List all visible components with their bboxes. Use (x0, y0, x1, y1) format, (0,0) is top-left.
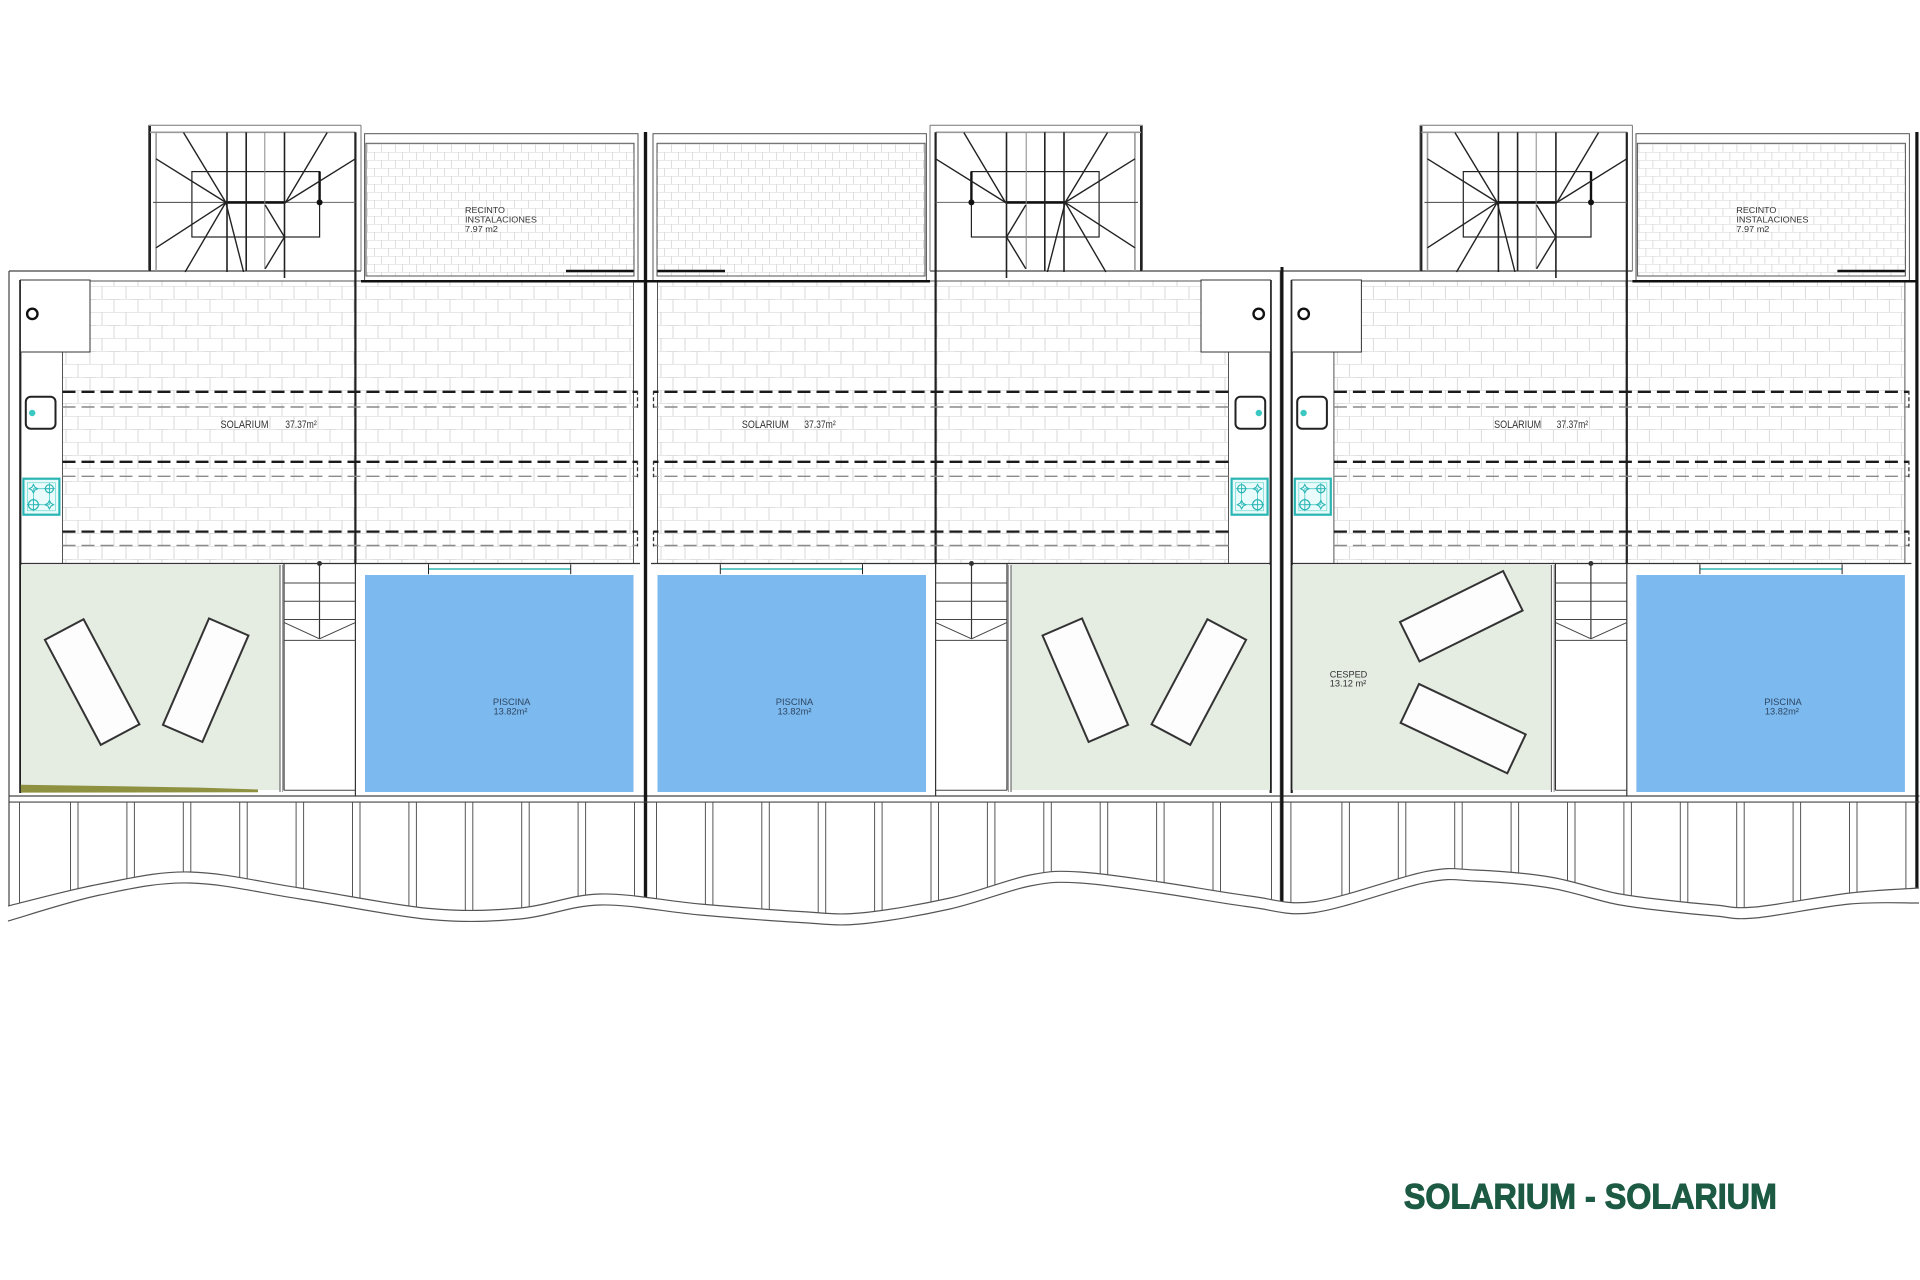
svg-text:13.82m²: 13.82m² (1765, 707, 1800, 718)
svg-text:37.37m²: 37.37m² (285, 419, 317, 431)
svg-text:RECINTO: RECINTO (1736, 205, 1776, 215)
svg-text:SOLARIUM: SOLARIUM (742, 419, 789, 431)
svg-text:INSTALACIONES: INSTALACIONES (1736, 215, 1808, 225)
svg-text:37.37m²: 37.37m² (1557, 419, 1589, 431)
svg-text:SOLARIUM: SOLARIUM (1494, 419, 1541, 431)
svg-text:SOLARIUM: SOLARIUM (221, 419, 269, 431)
svg-text:13.82m²: 13.82m² (778, 707, 813, 718)
svg-text:INSTALACIONES: INSTALACIONES (465, 215, 537, 225)
svg-text:13.82m²: 13.82m² (494, 707, 529, 718)
svg-text:7.97 m2: 7.97 m2 (465, 224, 498, 234)
svg-text:13.12 m²: 13.12 m² (1330, 679, 1367, 690)
svg-text:RECINTO: RECINTO (465, 205, 505, 215)
svg-text:7.97 m2: 7.97 m2 (1736, 224, 1769, 234)
svg-text:SOLARIUM - SOLARIUM: SOLARIUM - SOLARIUM (1404, 1177, 1777, 1217)
svg-text:37.37m²: 37.37m² (804, 419, 836, 431)
